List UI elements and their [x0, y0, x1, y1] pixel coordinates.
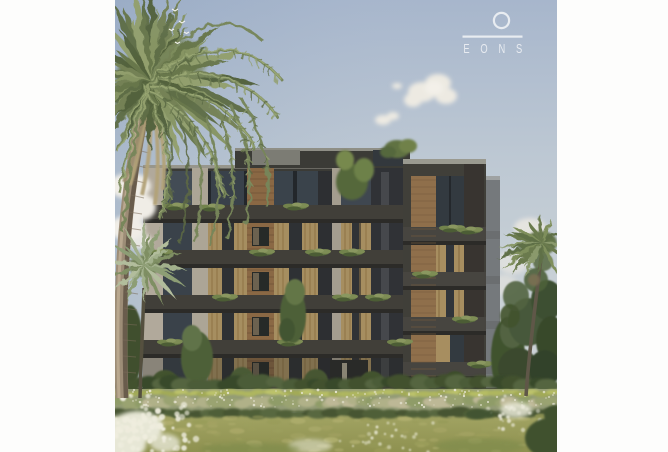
svg-text:EONS: EONS	[463, 43, 533, 57]
